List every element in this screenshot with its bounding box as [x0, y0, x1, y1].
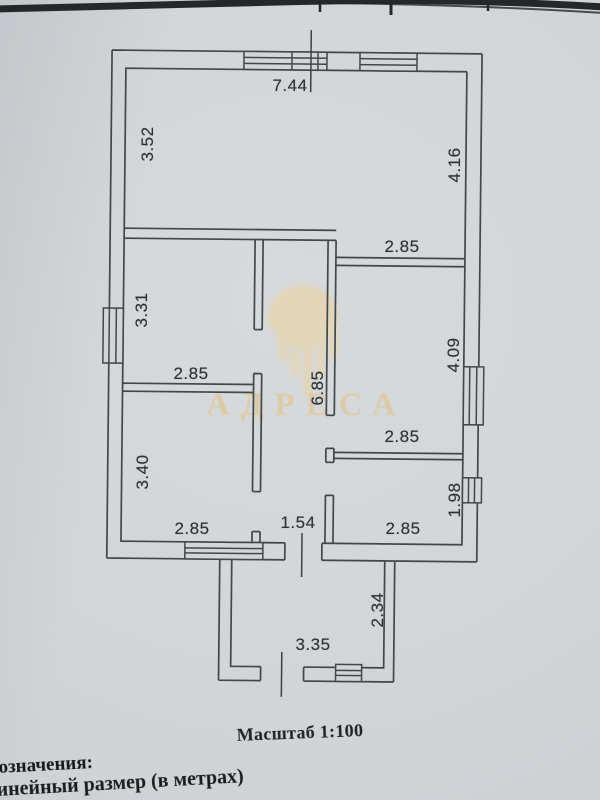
window-top-left: [244, 51, 327, 70]
wall-left-rooms-divider: [123, 383, 254, 392]
dim-room-br-height: 1.98: [445, 482, 465, 517]
scanned-floor-plan-page: АДРЕСА: [0, 0, 600, 800]
inner-wall-lines: [121, 68, 467, 545]
window-top-right: [360, 53, 417, 72]
door-jamb-caps: [260, 543, 321, 682]
dim-living-left-height: 3.52: [138, 126, 158, 161]
dim-room-br-width: 2.85: [385, 519, 420, 539]
dim-room-ml-width: 2.85: [173, 364, 208, 384]
window-left: [103, 308, 124, 363]
tick-top-width: [311, 30, 312, 92]
dim-room-bl-width: 2.85: [174, 519, 209, 539]
dim-room-right-width: 2.85: [384, 427, 419, 447]
dim-hall-height: 6.85: [308, 370, 328, 405]
floor-plan-drawing: [0, 0, 600, 800]
walls: [106, 50, 483, 683]
dim-porch-height: 2.34: [368, 592, 388, 627]
window-right-lower: [462, 478, 481, 503]
wall-right-rooms-divider: [334, 452, 463, 459]
dim-hall-width: 1.54: [280, 513, 315, 533]
window-porch: [335, 664, 361, 681]
dim-top-width: 7.44: [272, 76, 307, 96]
dim-room-tr-width: 2.85: [384, 237, 419, 257]
wall-living-bottom-left: [124, 228, 336, 240]
dim-room-bl-height: 3.40: [133, 454, 153, 489]
dim-room-ml-height: 3.31: [132, 292, 152, 327]
dimension-ticks: [281, 30, 311, 697]
window-bottom-left: [185, 542, 263, 560]
outer-wall-lines: [106, 50, 483, 683]
cropped-text-top-edge: [0, 1, 600, 15]
wall-living-bottom-right: [336, 257, 465, 266]
wall-corridor-left: [252, 240, 263, 543]
dim-room-right-height: 4.09: [444, 337, 464, 372]
dim-living-right-height: 4.16: [445, 147, 465, 182]
dim-porch-width: 3.35: [295, 635, 330, 655]
window-right-upper: [463, 367, 484, 425]
